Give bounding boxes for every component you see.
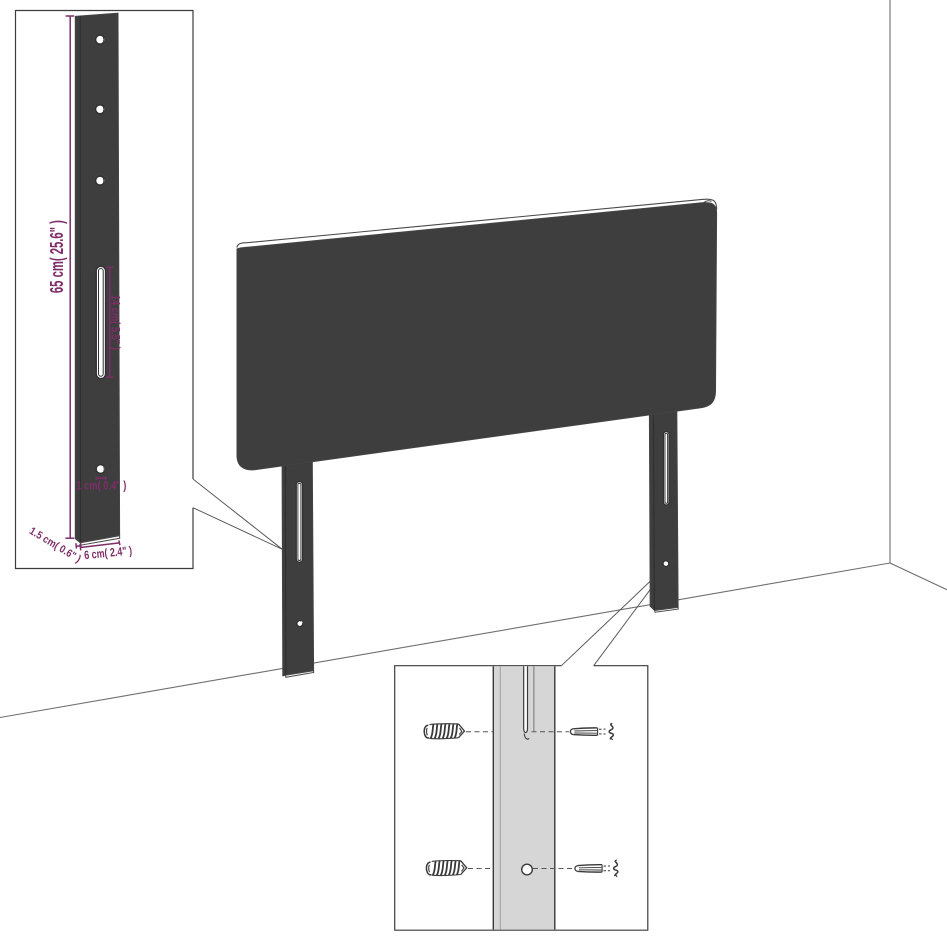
svg-text:1 cm( 0.4" ): 1 cm( 0.4" ): [76, 479, 126, 493]
svg-text:65 cm( 25.6" ): 65 cm( 25.6" ): [47, 220, 67, 293]
svg-text:14 cm( 5.5" ): 14 cm( 5.5" ): [108, 295, 122, 350]
